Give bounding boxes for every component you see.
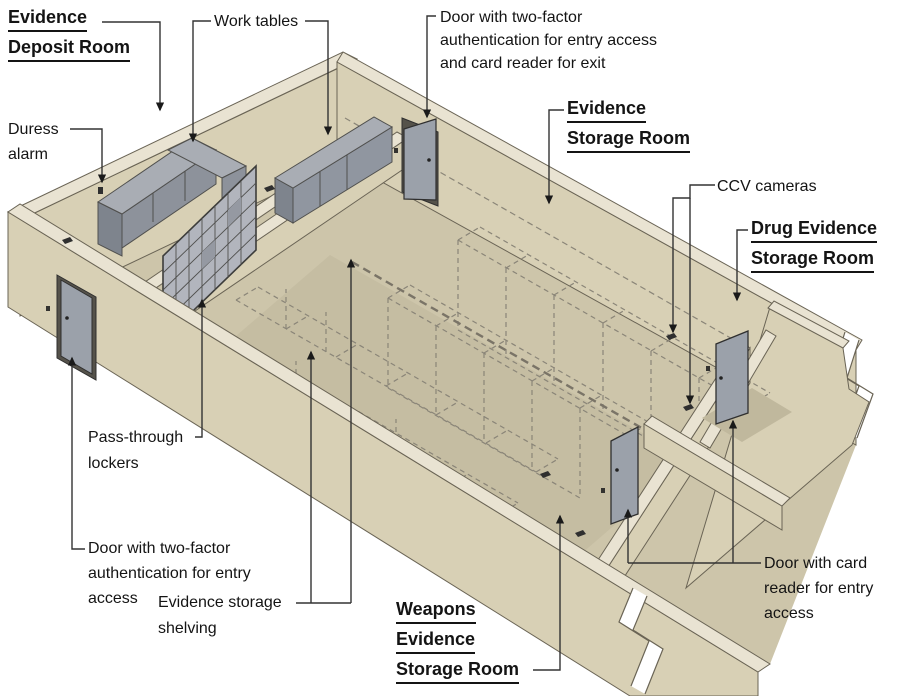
- label-evidence-storage-shelving: Evidence storage shelving: [158, 590, 282, 642]
- door-handle: [427, 158, 431, 162]
- label-pass-through-lockers: Pass-through lockers: [88, 425, 183, 477]
- label-door-two-factor-exit: Door with two-factor authentication for …: [440, 6, 657, 75]
- door-handle: [719, 376, 723, 380]
- diagram-canvas: Evidence Deposit Room Work tables Door w…: [0, 0, 900, 696]
- card-reader-icon: [394, 148, 398, 153]
- label-door-card-reader: Door with card reader for entry access: [764, 551, 873, 626]
- label-weapons-evidence-storage-room: Weapons Evidence Storage Room: [396, 598, 519, 688]
- card-reader-icon: [601, 488, 605, 493]
- label-ccv-cameras: CCV cameras: [717, 175, 817, 198]
- leader-door-two-factor-entry: [72, 358, 85, 549]
- card-reader-icon: [706, 366, 710, 371]
- door-handle: [615, 468, 619, 472]
- duress-alarm-icon: [98, 187, 103, 194]
- door-handle: [65, 316, 69, 320]
- label-evidence-deposit-room: Evidence Deposit Room: [8, 6, 130, 66]
- label-drug-evidence-storage-room: Drug Evidence Storage Room: [751, 217, 877, 277]
- label-duress-alarm: Duress alarm: [8, 117, 59, 167]
- label-work-tables: Work tables: [214, 10, 298, 33]
- label-evidence-storage-room: Evidence Storage Room: [567, 97, 690, 157]
- card-reader-icon: [46, 306, 50, 311]
